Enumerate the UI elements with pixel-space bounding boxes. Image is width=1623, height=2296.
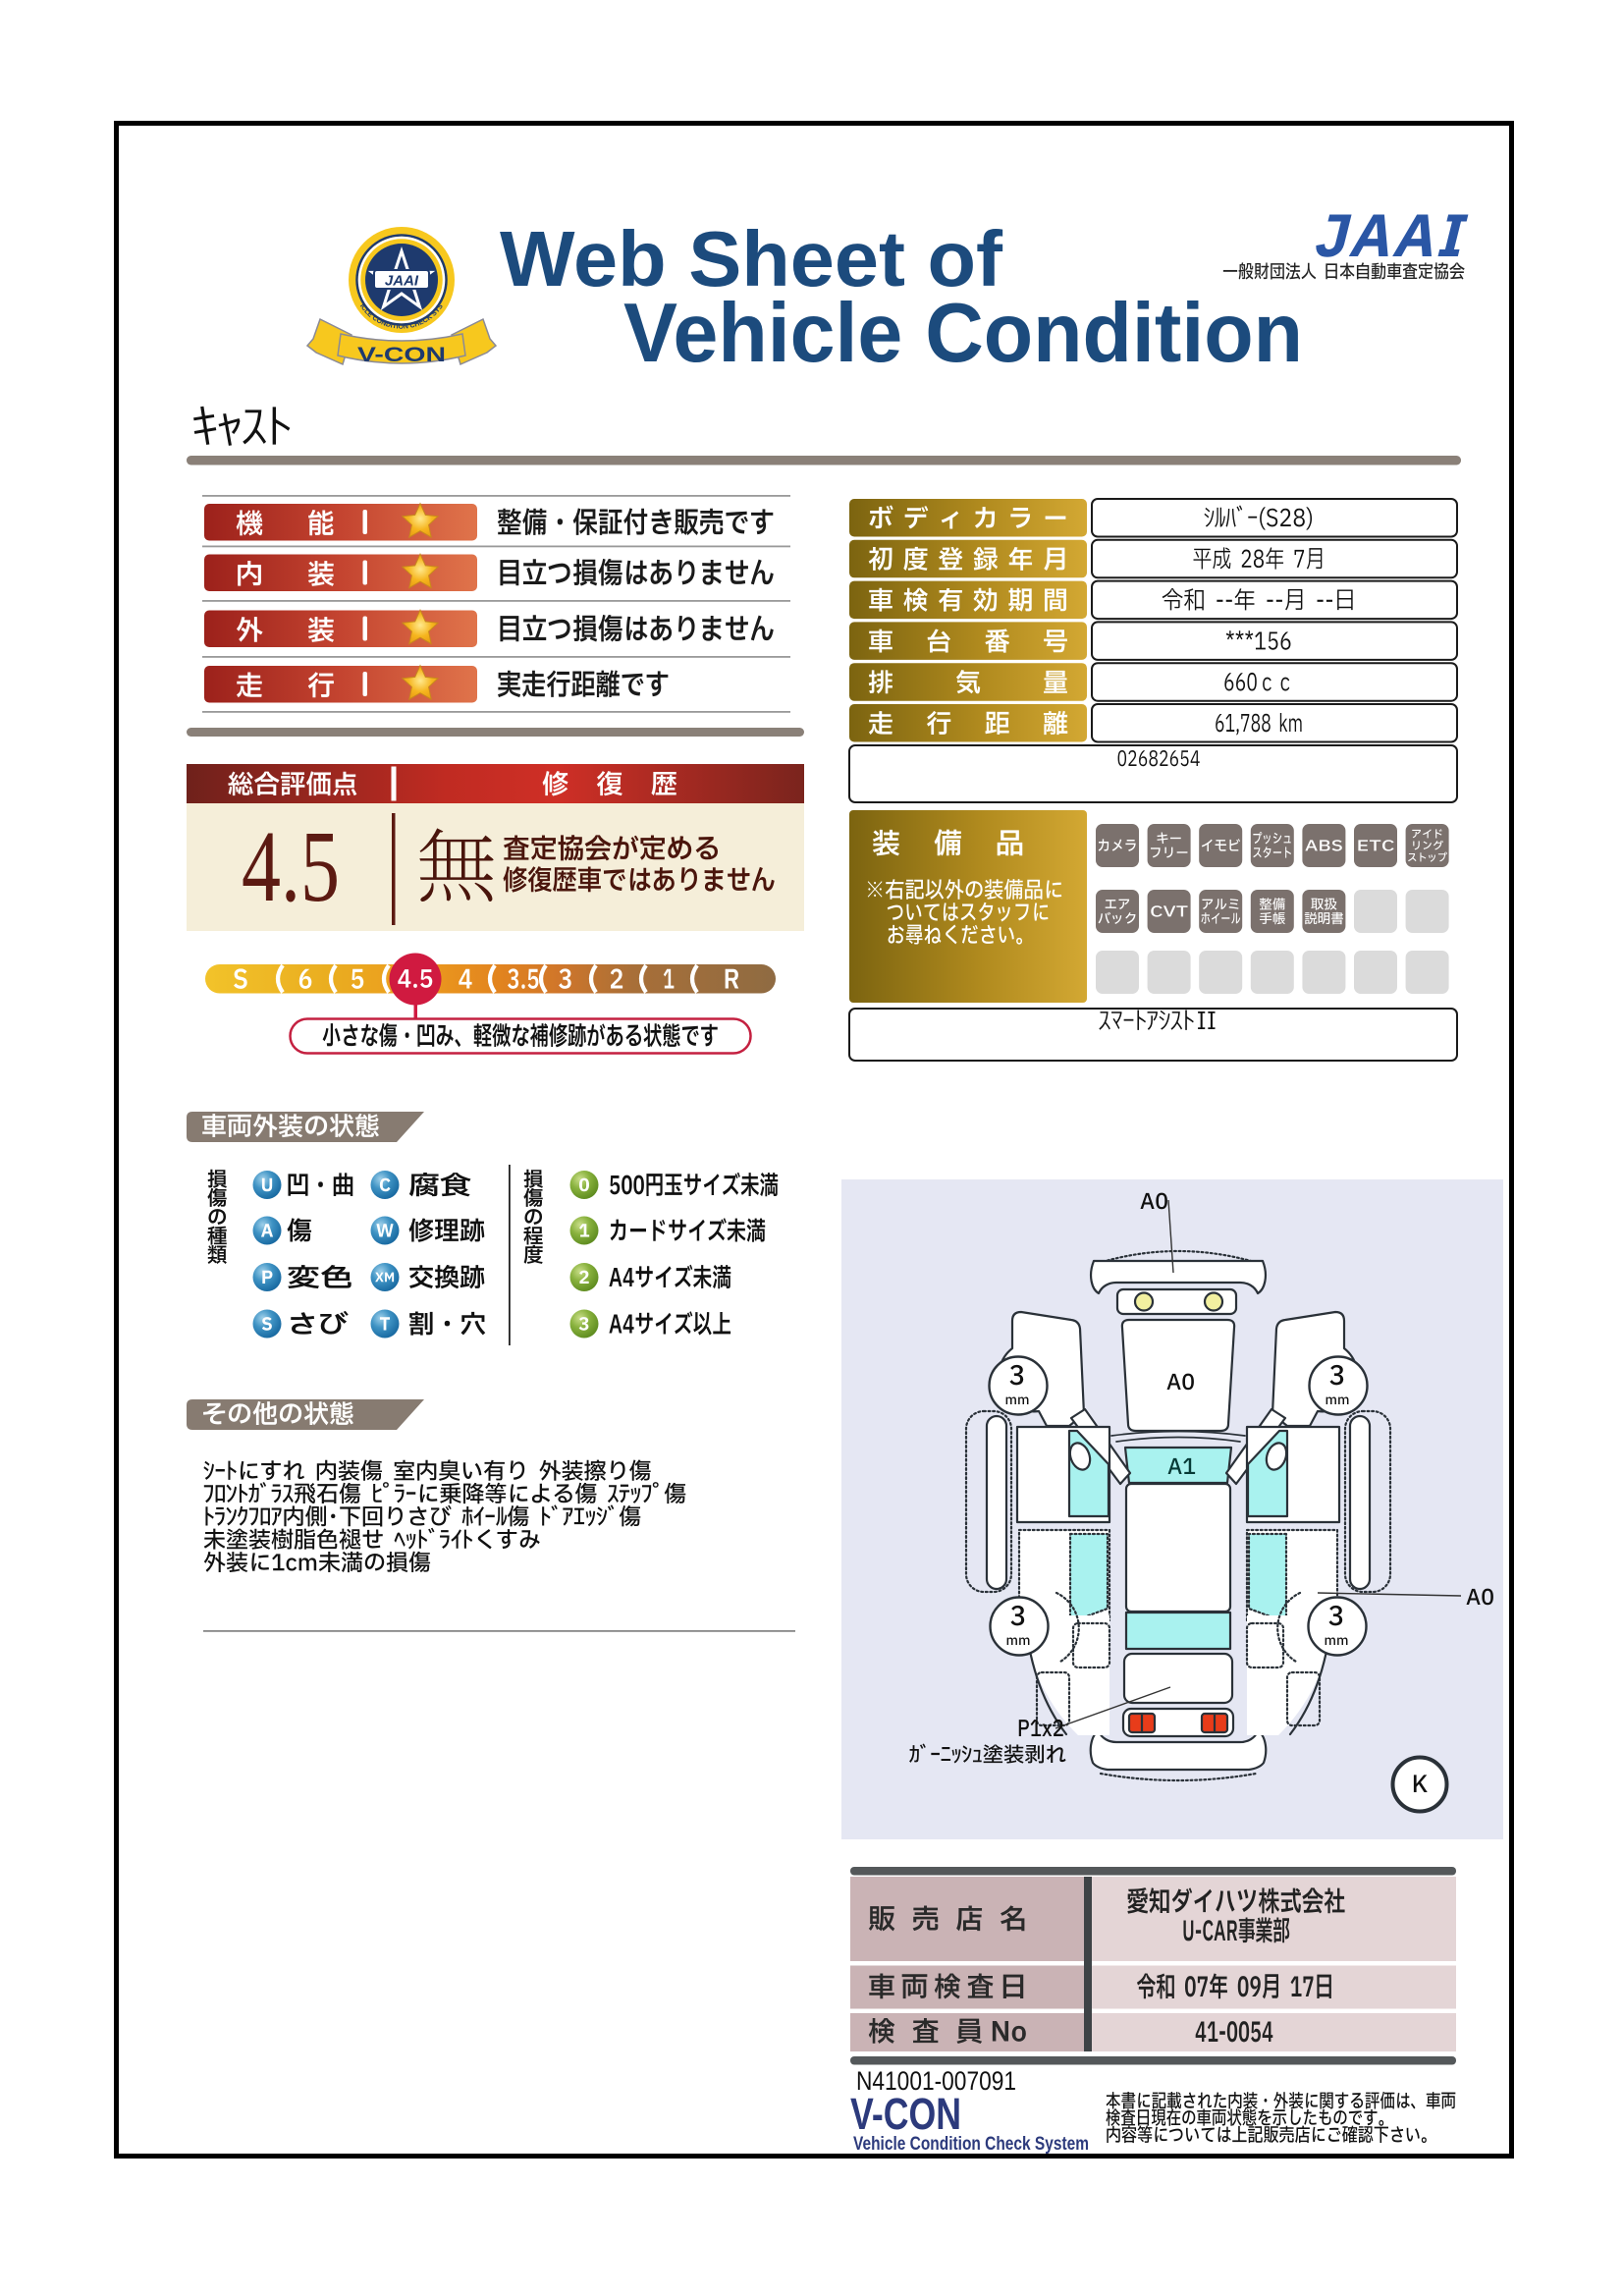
svg-text:V-CON: V-CON bbox=[357, 344, 446, 366]
svg-text:4.5: 4.5 bbox=[242, 810, 340, 923]
svg-text:V-CON: V-CON bbox=[850, 2089, 961, 2139]
svg-text:JAAI: JAAI bbox=[385, 273, 419, 290]
svg-text:Vehicle Condition: Vehicle Condition bbox=[623, 287, 1303, 380]
svg-text:Vehicle Condition Check System: Vehicle Condition Check System bbox=[853, 2134, 1089, 2155]
